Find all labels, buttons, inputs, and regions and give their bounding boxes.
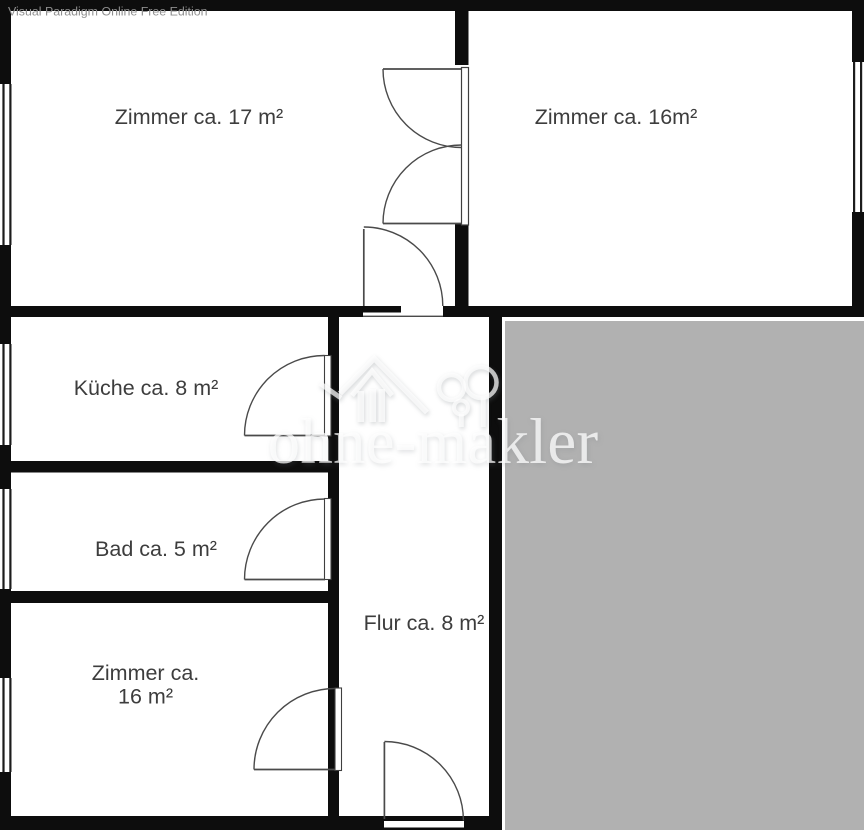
svg-text:Flur ca. 8 m²: Flur ca. 8 m² (364, 611, 485, 635)
svg-text:ohne-makler: ohne-makler (268, 406, 599, 478)
svg-text:Zimmer ca.: Zimmer ca. (92, 661, 200, 685)
svg-text:16 m²: 16 m² (118, 685, 173, 709)
svg-text:Küche ca. 8 m²: Küche ca. 8 m² (74, 376, 219, 400)
svg-text:Bad ca. 5 m²: Bad ca. 5 m² (95, 537, 217, 561)
svg-text:Zimmer ca. 16m²: Zimmer ca. 16m² (535, 105, 697, 129)
svg-text:Visual Paradigm Online Free Ed: Visual Paradigm Online Free Edition (8, 5, 208, 19)
svg-text:Zimmer ca. 17 m²: Zimmer ca. 17 m² (115, 105, 283, 129)
